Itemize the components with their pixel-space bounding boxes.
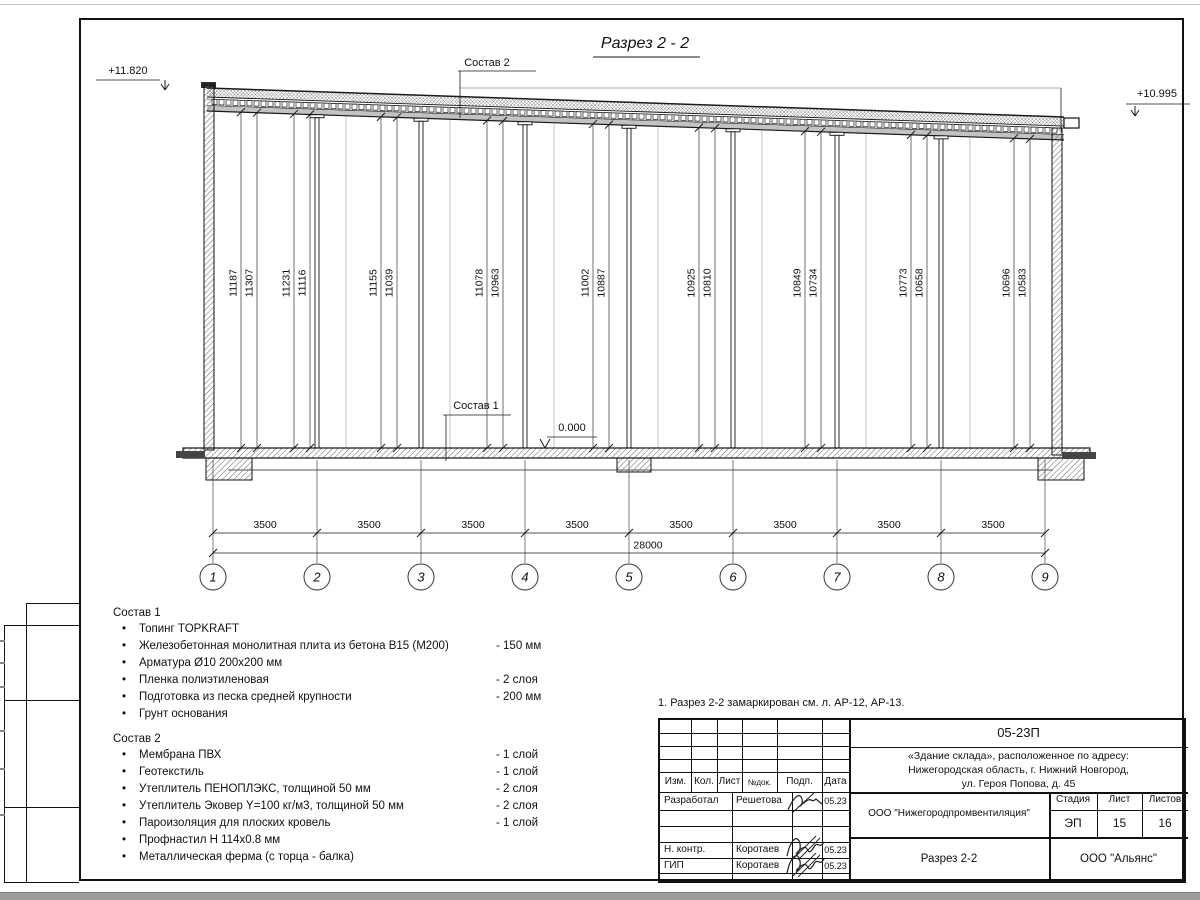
drawing-title: Разрез 2 - 2 — [601, 35, 689, 52]
axis-bubble: 4 — [521, 570, 528, 585]
bay-dimension: 3500 — [669, 519, 693, 531]
height-dimension: 10849 — [792, 268, 804, 297]
list-item: •Топинг TOPKRAFT — [113, 621, 583, 638]
item-text: Пароизоляция для плоских кровель — [139, 815, 496, 832]
height-dimension: 11231 — [281, 269, 293, 298]
height-dimension: 10963 — [490, 268, 502, 297]
col-ndok: №док. — [742, 778, 777, 787]
object-address-2: Нижегородская область, г. Нижний Новгоро… — [849, 764, 1188, 776]
stage-value: ЭП — [1049, 816, 1097, 830]
project-code: 05-23П — [849, 725, 1188, 740]
callout-sostav2: Состав 2 — [464, 57, 510, 69]
item-text: Арматура Ø10 200х200 мм — [139, 655, 496, 672]
item-text: Геотекстиль — [139, 764, 496, 781]
bullet-icon: • — [113, 672, 139, 689]
height-dimension: 10658 — [914, 268, 926, 297]
axis-bubble: 2 — [312, 570, 321, 585]
list-item: •Утеплитель ПЕНОПЛЭКС, толщиной 50 мм- 2… — [113, 781, 583, 798]
height-dimension: 10887 — [596, 268, 608, 297]
staff-role: ГИП — [664, 860, 684, 871]
staff-role: Н. контр. — [664, 844, 705, 855]
staff-name: Коротаев — [736, 860, 779, 871]
list-item: •Арматура Ø10 200х200 мм — [113, 655, 583, 672]
item-text: Топинг TOPKRAFT — [139, 621, 496, 638]
stage-label: Стадия — [1049, 794, 1097, 805]
sostav2-list: Состав 2 •Мембрана ПВХ- 1 слой•Геотексти… — [113, 733, 583, 866]
bullet-icon: • — [113, 689, 139, 706]
item-value: - 200 мм — [496, 689, 541, 706]
staff-date: 05.23 — [822, 861, 849, 871]
axis-bubble: 5 — [625, 570, 633, 585]
list-item: •Профнастил Н 114х0.8 мм — [113, 832, 583, 849]
height-dimension: 11307 — [244, 269, 256, 298]
col-list: Лист — [717, 776, 742, 787]
height-dimension: 10696 — [1001, 268, 1013, 297]
bullet-icon: • — [113, 798, 139, 815]
list-item: •Грунт основания — [113, 706, 583, 723]
height-dimension: 10773 — [898, 268, 910, 297]
zero-level-mark: 0.000 — [558, 422, 586, 434]
staff-role: Разработал — [664, 795, 718, 806]
bay-dimension: 3500 — [981, 519, 1005, 531]
list-item: •Металлическая ферма (с торца - балка) — [113, 849, 583, 866]
bullet-icon: • — [113, 655, 139, 672]
bay-dimension: 3500 — [565, 519, 589, 531]
list-item: •Геотекстиль- 1 слой — [113, 764, 583, 781]
item-value: - 1 слой — [496, 764, 538, 781]
item-text: Профнастил Н 114х0.8 мм — [139, 832, 496, 849]
staff-name: Коротаев — [736, 844, 779, 855]
col-izm: Изм. — [660, 776, 691, 787]
height-dimension: 11155 — [368, 269, 380, 297]
height-dimension: 10810 — [702, 268, 714, 297]
bullet-icon: • — [113, 638, 139, 655]
item-text: Утеплитель Эковер Y=100 кг/м3, толщиной … — [139, 798, 496, 815]
bullet-icon: • — [113, 781, 139, 798]
drawing-sheet: Разрез 2 - 2Состав 2Состав 10.000+11.820… — [0, 0, 1200, 900]
list-item: •Пароизоляция для плоских кровель- 1 сло… — [113, 815, 583, 832]
item-value: - 2 слоя — [496, 781, 538, 798]
design-org: ООО "Нижегородпромвентиляция" — [849, 808, 1049, 819]
bullet-icon: • — [113, 832, 139, 849]
elevation-right: +10.995 — [1137, 88, 1177, 100]
axis-bubble: 3 — [417, 570, 425, 585]
axis-bubble: 8 — [937, 570, 945, 585]
drawing-note: 1. Разрез 2-2 замаркирован см. л. АР-12,… — [658, 697, 904, 709]
item-text: Железобетонная монолитная плита из бетон… — [139, 638, 496, 655]
item-text: Металлическая ферма (с торца - балка) — [139, 849, 496, 866]
item-text: Пленка полиэтиленовая — [139, 672, 496, 689]
staff-date: 05.23 — [822, 796, 849, 806]
bullet-icon: • — [113, 815, 139, 832]
bay-dimension: 3500 — [773, 519, 797, 531]
item-text: Грунт основания — [139, 706, 496, 723]
bullet-icon: • — [113, 747, 139, 764]
item-value: - 1 слой — [496, 747, 538, 764]
axis-bubble: 7 — [833, 570, 841, 585]
height-dimension: 10925 — [686, 268, 698, 297]
height-dimension: 11002 — [580, 269, 592, 298]
sostav1-list: Состав 1 •Топинг TOPKRAFT•Железобетонная… — [113, 607, 583, 723]
list-item: •Пленка полиэтиленовая- 2 слоя — [113, 672, 583, 689]
col-data: Дата — [822, 776, 849, 787]
height-dimension: 11187 — [228, 269, 240, 297]
staff-name: Решетова — [736, 795, 782, 806]
height-dimension: 11039 — [384, 269, 396, 298]
height-dimension: 11078 — [474, 269, 486, 298]
list-item: •Подготовка из песка средней крупности- … — [113, 689, 583, 706]
sostav2-heading: Состав 2 — [113, 733, 583, 745]
title-block: 05-23П «Здание склада», расположенное по… — [658, 718, 1186, 883]
item-value: - 2 слоя — [496, 798, 538, 815]
sostav1-heading: Состав 1 — [113, 607, 583, 619]
bullet-icon: • — [113, 706, 139, 723]
axis-bubble: 9 — [1041, 570, 1048, 585]
height-dimension: 11116 — [297, 269, 309, 296]
sheet-label: Лист — [1097, 794, 1142, 805]
height-dimension: 10583 — [1017, 268, 1029, 297]
total-dimension: 28000 — [633, 540, 662, 552]
sheets-label: Листов — [1142, 794, 1188, 805]
col-kol: Кол. — [691, 776, 717, 787]
col-podp: Подп. — [777, 776, 822, 787]
elevation-left: +11.820 — [108, 65, 147, 77]
list-item: •Утеплитель Эковер Y=100 кг/м3, толщиной… — [113, 798, 583, 815]
item-text: Подготовка из песка средней крупности — [139, 689, 496, 706]
object-address-1: «Здание склада», расположенное по адресу… — [849, 750, 1188, 762]
bullet-icon: • — [113, 764, 139, 781]
callout-sostav1: Состав 1 — [453, 400, 499, 412]
item-text: Утеплитель ПЕНОПЛЭКС, толщиной 50 мм — [139, 781, 496, 798]
list-item: •Мембрана ПВХ- 1 слой — [113, 747, 583, 764]
item-value: - 1 слой — [496, 815, 538, 832]
bullet-icon: • — [113, 849, 139, 866]
bullet-icon: • — [113, 621, 139, 638]
bay-dimension: 3500 — [253, 519, 277, 531]
bay-dimension: 3500 — [877, 519, 901, 531]
object-address-3: ул. Героя Попова, д. 45 — [849, 778, 1188, 790]
axis-bubble: 1 — [209, 570, 216, 585]
height-dimension: 10734 — [808, 268, 820, 297]
axis-bubble: 6 — [729, 570, 737, 585]
sheet-value: 15 — [1097, 816, 1142, 830]
staff-date: 05.23 — [822, 845, 849, 855]
item-text: Мембрана ПВХ — [139, 747, 496, 764]
item-value: - 150 мм — [496, 638, 541, 655]
item-value: - 2 слоя — [496, 672, 538, 689]
sheets-value: 16 — [1142, 816, 1188, 830]
company-name: ООО "Альянс" — [1049, 853, 1188, 865]
doc-title: Разрез 2-2 — [849, 853, 1049, 865]
list-item: •Железобетонная монолитная плита из бето… — [113, 638, 583, 655]
bay-dimension: 3500 — [461, 519, 485, 531]
signature-reshetova — [786, 790, 824, 816]
signature-korotaev-2 — [784, 849, 826, 879]
bay-dimension: 3500 — [357, 519, 381, 531]
